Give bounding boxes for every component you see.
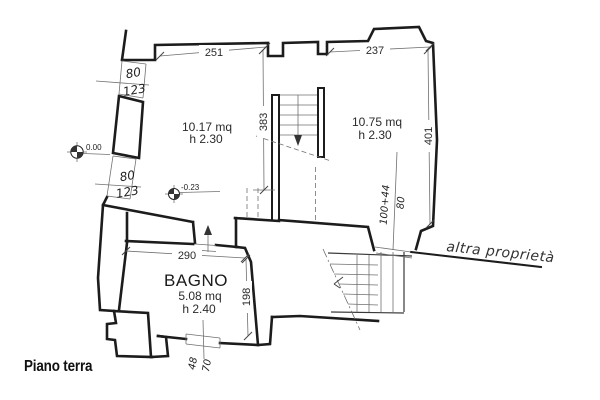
stair-cut-line: [256, 136, 331, 161]
bathroom-door-arrow: [204, 225, 212, 235]
window-bathroom-sill-label: 70: [201, 358, 214, 372]
right-door-width-label: 80: [396, 196, 408, 209]
floor-title-text: Piano terra: [24, 358, 93, 375]
window-bathroom: 48 70: [186, 320, 220, 373]
benchmark-ground: 0.00: [67, 142, 110, 162]
room-right-height: h 2.30: [358, 128, 392, 142]
dim-290-label: 290: [178, 250, 196, 262]
room-right-label: 10.75 mq h 2.30: [352, 115, 402, 142]
dim-237-label: 237: [366, 45, 384, 57]
room-left-label: 10.17 mq h 2.30: [182, 120, 232, 146]
dimension-bathroom-width: 290: [122, 247, 249, 262]
bathroom-area: 5.08 mq: [178, 289, 221, 303]
window-bathroom-width-label: 48: [187, 356, 200, 370]
bathroom-door-opening: [195, 225, 216, 252]
benchmark-offset: -0.23: [165, 183, 220, 203]
right-door-height-label: 100+44: [379, 184, 393, 225]
bathroom-height: h 2.40: [182, 302, 216, 316]
dim-383-label: 383: [258, 113, 270, 131]
dim-251-label: 251: [205, 47, 223, 59]
dim-401-label: 401: [423, 127, 435, 145]
window-upper-left: 80 123: [96, 61, 149, 99]
window-lower-left-width-label: 80: [119, 168, 137, 185]
level-offset-label: -0.23: [181, 183, 200, 192]
floor-plan-page: 80 123 80 123 48 70 100+44 80 251 237: [0, 0, 600, 400]
window-lower-left: 80 123: [95, 156, 141, 201]
bathroom-label: BAGNO 5.08 mq h 2.40: [164, 271, 228, 316]
dimension-top-right: 237: [326, 43, 434, 57]
floor-title: Piano terra: [24, 358, 93, 375]
window-upper-left-width-label: 80: [125, 65, 143, 82]
level-ground-label: 0.00: [86, 143, 102, 152]
window-lower-left-sill-label: 123: [115, 183, 140, 201]
room-right-area: 10.75 mq: [352, 115, 402, 129]
room-left-height: h 2.30: [189, 132, 223, 146]
floor-plan-drawing: 80 123 80 123 48 70 100+44 80 251 237: [0, 0, 600, 400]
bathroom-name: BAGNO: [164, 271, 228, 290]
dim-198-label: 198: [241, 288, 253, 306]
stairs-down-arrow: [294, 135, 302, 146]
door-opening-right: 100+44 80: [375, 152, 412, 258]
